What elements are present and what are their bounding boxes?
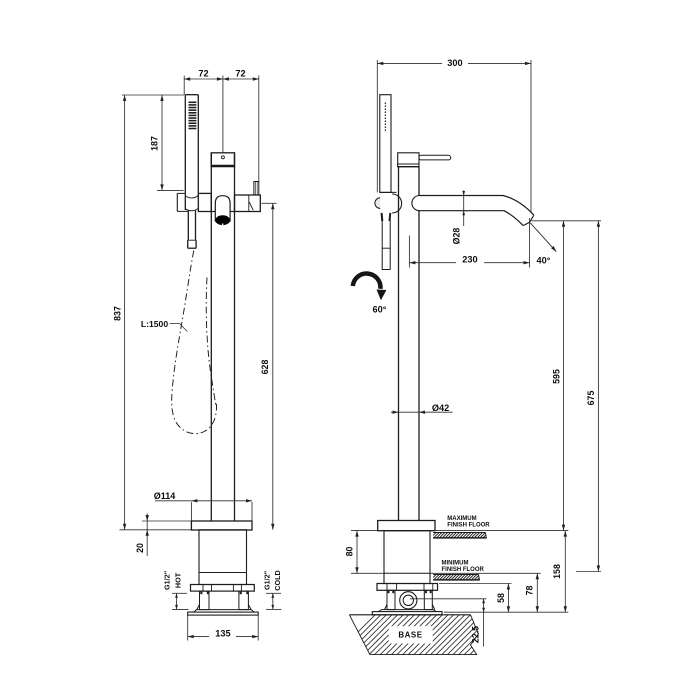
svg-text:20: 20: [135, 543, 145, 553]
svg-text:158: 158: [552, 564, 562, 579]
svg-text:300: 300: [447, 58, 462, 68]
svg-text:L:1500: L:1500: [141, 319, 168, 329]
svg-text:G1/2″: G1/2″: [263, 570, 272, 590]
svg-text:Ø42: Ø42: [432, 403, 449, 413]
svg-text:628: 628: [260, 360, 270, 375]
svg-text:Ø114: Ø114: [154, 491, 176, 501]
svg-text:72: 72: [198, 69, 208, 79]
svg-text:78: 78: [525, 586, 535, 596]
svg-text:COLD: COLD: [273, 570, 282, 590]
svg-text:BASE: BASE: [398, 631, 422, 640]
svg-text:675: 675: [586, 391, 596, 406]
svg-text:72: 72: [235, 69, 245, 79]
svg-text:135: 135: [215, 629, 230, 639]
svg-text:595: 595: [551, 369, 561, 384]
svg-text:187: 187: [150, 136, 160, 151]
svg-text:FINISH FLOOR: FINISH FLOOR: [447, 523, 490, 529]
svg-text:FINISH FLOOR: FINISH FLOOR: [442, 567, 485, 573]
svg-text:22.5: 22.5: [471, 626, 481, 643]
svg-text:837: 837: [113, 306, 123, 321]
svg-text:80: 80: [344, 547, 354, 557]
svg-text:Ø28: Ø28: [452, 228, 462, 245]
svg-text:G1/2″: G1/2″: [163, 570, 172, 590]
svg-text:MINIMUM: MINIMUM: [442, 560, 469, 566]
svg-text:HOT: HOT: [173, 572, 182, 588]
svg-text:60°: 60°: [373, 304, 387, 314]
svg-text:230: 230: [462, 255, 477, 265]
svg-text:40°: 40°: [537, 256, 551, 266]
svg-text:MAXIMUM: MAXIMUM: [447, 516, 476, 522]
svg-text:58: 58: [496, 593, 506, 603]
